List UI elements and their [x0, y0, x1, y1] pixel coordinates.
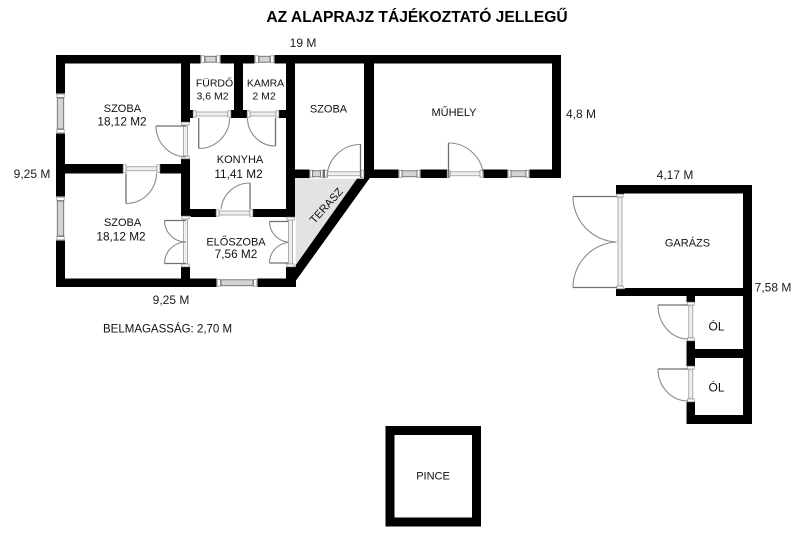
svg-text:18,12 M2: 18,12 M2 — [96, 229, 145, 243]
svg-text:SZOBA: SZOBA — [310, 104, 348, 116]
svg-text:2 M2: 2 M2 — [252, 91, 276, 103]
svg-text:PINCE: PINCE — [416, 471, 450, 483]
svg-text:SZOBA: SZOBA — [104, 217, 142, 229]
svg-text:SZOBA: SZOBA — [104, 103, 142, 115]
svg-text:7,56 M2: 7,56 M2 — [215, 247, 258, 261]
svg-text:4,8 M: 4,8 M — [566, 107, 596, 121]
svg-text:4,17 M: 4,17 M — [657, 168, 694, 182]
svg-text:ÓL: ÓL — [708, 319, 724, 334]
svg-text:GARÁZS: GARÁZS — [665, 237, 710, 250]
svg-text:18,12 M2: 18,12 M2 — [97, 115, 146, 129]
svg-text:7,58 M: 7,58 M — [755, 281, 792, 295]
svg-text:3,6 M2: 3,6 M2 — [196, 91, 228, 103]
svg-text:BELMAGASSÁG: 2,70 M: BELMAGASSÁG: 2,70 M — [103, 323, 232, 336]
svg-text:AZ ALAPRAJZ TÁJÉKOZTATÓ JELLEG: AZ ALAPRAJZ TÁJÉKOZTATÓ JELLEGŰ — [266, 7, 567, 26]
svg-text:19 M: 19 M — [290, 36, 317, 50]
svg-text:ÓL: ÓL — [708, 380, 724, 395]
svg-text:MŰHELY: MŰHELY — [431, 105, 477, 119]
svg-text:KONYHA: KONYHA — [217, 154, 264, 166]
svg-text:11,41 M2: 11,41 M2 — [214, 167, 262, 181]
svg-text:9,25 M: 9,25 M — [14, 167, 51, 181]
svg-text:9,25 M: 9,25 M — [153, 293, 190, 307]
svg-text:KAMRA: KAMRA — [247, 78, 284, 90]
svg-text:FÜRDŐ: FÜRDŐ — [196, 76, 233, 90]
